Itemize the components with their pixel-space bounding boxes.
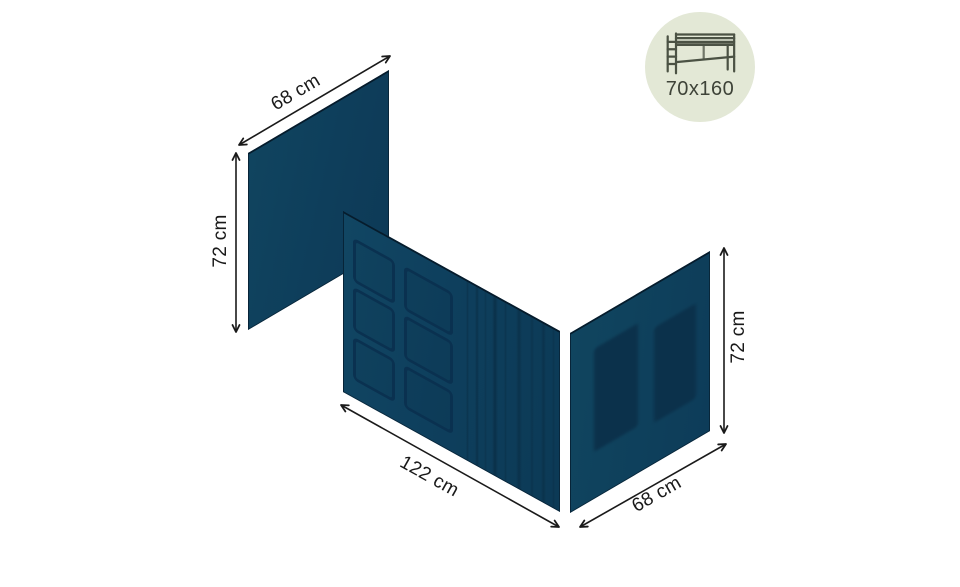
dim-label-end-height: 72 cm (728, 310, 750, 363)
bed-size-badge: 70x160 (645, 12, 755, 122)
curtain-pleat (484, 291, 487, 471)
curtain-pleat (552, 329, 555, 509)
bed-size-label: 70x160 (666, 78, 735, 101)
curtain-pleat (541, 323, 546, 504)
dim-label-head-width: 68 cm (267, 70, 324, 116)
end-mesh-window (594, 323, 638, 452)
dim-label-front-width: 122 cm (396, 452, 463, 502)
curtain-pleat (492, 295, 498, 476)
curtain-pleat (516, 309, 522, 490)
curtain-pleat (530, 316, 534, 496)
curtain-pleat (504, 302, 507, 482)
dim-label-end-width: 68 cm (628, 472, 685, 517)
loft-bed-icon (660, 28, 740, 76)
dim-label-head-height: 72 cm (210, 214, 232, 267)
end-mesh-window (654, 303, 696, 423)
front-panel (343, 211, 560, 512)
bed-curtain-dimension-diagram: 68 cm 72 cm 122 cm 68 cm 72 cm (0, 0, 960, 587)
curtain-pleat (475, 286, 479, 466)
curtain-pleat (466, 281, 469, 461)
end-panel (570, 251, 710, 513)
